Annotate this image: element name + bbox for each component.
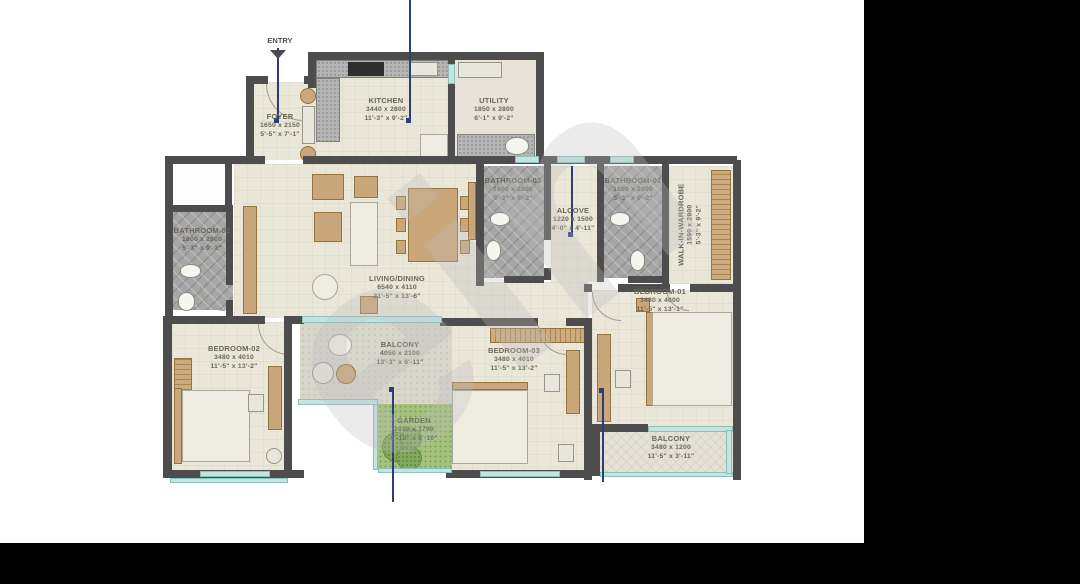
wall — [544, 268, 551, 280]
utility-sink-icon — [458, 62, 502, 78]
letterbox-bottom — [0, 543, 1080, 584]
room-name: BEDROOM-03 — [464, 346, 564, 356]
room-name: BATHROOM-02 — [166, 226, 238, 236]
wall — [504, 276, 544, 283]
letterbox-right — [864, 0, 1080, 584]
entry-arrow-icon — [270, 50, 286, 59]
wall — [165, 156, 265, 164]
console-icon — [243, 206, 257, 314]
room-name: BALCONY — [616, 434, 726, 444]
window — [600, 472, 733, 477]
room-label-foyer: FOYER 1650 x 2150 5'-5" x 7'-1" — [248, 112, 312, 139]
room-name: ALCOVE — [546, 206, 600, 216]
room-dim-ft: 6'-1" x 9'-2" — [450, 115, 538, 124]
window — [557, 156, 585, 163]
sink-icon — [490, 212, 510, 226]
room-label-bedroom-03: BEDROOM-03 3480 x 4010 11'-5" x 13'-2" — [464, 346, 564, 373]
room-label-balcony-bedroom: BALCONY 3480 x 1200 11'-5" x 3'-11" — [616, 434, 726, 461]
wall — [303, 156, 355, 164]
room-dim-mm: 1600 x 2800 — [598, 186, 668, 195]
room-label-bedroom-02: BEDROOM-02 3480 x 4010 11'-5" x 13'-2" — [188, 344, 280, 371]
wall — [165, 205, 233, 212]
wall — [284, 316, 292, 478]
wall — [592, 424, 648, 432]
room-name: KITCHEN — [340, 96, 432, 106]
window — [378, 468, 452, 473]
leader-line — [277, 48, 279, 122]
room-dim-mm: 2090 x 1790 — [374, 426, 454, 435]
room-name: LIVING/DINING — [348, 274, 446, 284]
bed-icon — [182, 390, 250, 462]
floor-shaft — [173, 163, 227, 207]
desk-icon — [268, 366, 282, 430]
desk-icon — [597, 334, 611, 422]
leader-line — [602, 390, 604, 482]
wall — [592, 424, 600, 476]
round-chair-icon — [312, 274, 338, 300]
room-dim-ft: 5'-3" x 9'-2" — [478, 195, 548, 204]
room-name: BALCONY — [352, 340, 448, 350]
window — [726, 430, 732, 474]
room-dim-ft: 11'-5" x 13'-2" — [188, 363, 280, 372]
room-dim-ft: 21'-5" x 13'-6" — [348, 293, 446, 302]
room-dim-ft: 11'-5" x 13'-1" — [600, 306, 720, 315]
room-dim-ft: 5'-3" x 9'-2" — [598, 195, 668, 204]
room-dim-mm: 3480 x 4000 — [600, 297, 720, 306]
room-label-alcove: ALCOVE 1220 x 1500 4'-0" x 4'-11" — [546, 206, 600, 233]
window — [648, 426, 733, 432]
dining-chair-icon — [396, 196, 406, 210]
stool-icon — [266, 448, 282, 464]
room-label-bedroom-01: BEDROOM-01 3480 x 4000 11'-5" x 13'-1" — [600, 287, 720, 314]
toilet-icon — [630, 250, 645, 271]
sofa-icon — [350, 202, 378, 266]
planter-icon — [328, 334, 352, 356]
window — [448, 64, 455, 84]
room-dim-ft: 5'-3" x 9'-2" — [166, 245, 238, 254]
room-name: UTILITY — [450, 96, 538, 106]
leader-line — [392, 390, 394, 502]
sink-icon — [178, 292, 195, 311]
dining-chair-icon — [396, 218, 406, 232]
room-label-bathroom-02: BATHROOM-02 1600 x 2800 5'-3" x 9'-2" — [166, 226, 238, 253]
dining-chair-icon — [460, 240, 470, 254]
room-name: FOYER — [248, 112, 312, 122]
room-dim-mm: 1850 x 2800 — [450, 106, 538, 115]
room-label-bathroom-03: BATHROOM-03 1600 x 2800 5'-3" x 9'-2" — [478, 176, 548, 203]
lounge-chair-icon — [314, 212, 342, 242]
room-dim-ft: 4'-0" x 4'-11" — [546, 225, 600, 234]
wall — [733, 160, 741, 480]
room-dim-mm: 3440 x 2800 — [340, 106, 432, 115]
room-name: BEDROOM-01 — [600, 287, 720, 297]
desk-icon — [566, 350, 580, 414]
chair-icon — [248, 394, 264, 412]
leader-dot — [389, 387, 394, 392]
wardrobe-shelves-icon — [711, 170, 731, 280]
room-dim-ft: 13'-3" x 6'-11" — [352, 359, 448, 368]
room-label-bathroom-01: BATHROOM-01 1600 x 2800 5'-3" x 9'-2" — [598, 176, 668, 203]
room-dim-mm: 1590 x 2800 — [686, 170, 695, 280]
room-dim-mm: 1600 x 2800 — [478, 186, 548, 195]
leader-dot — [599, 388, 604, 393]
window — [610, 156, 634, 163]
room-name: BATHROOM-03 — [478, 176, 548, 186]
armchair-icon — [312, 174, 344, 200]
kitchen-counter — [316, 78, 340, 142]
room-dim-ft: 11'-3" x 9'-2" — [340, 115, 432, 124]
wall — [584, 318, 592, 480]
window-sill — [170, 478, 288, 483]
armchair-icon — [354, 176, 378, 198]
wall — [225, 163, 232, 211]
room-label-living-dining: LIVING/DINING 6540 x 4110 21'-5" x 13'-6… — [348, 274, 446, 301]
window — [200, 471, 270, 477]
bed-frame-icon — [452, 382, 528, 390]
sink-icon — [610, 212, 630, 226]
wall — [304, 76, 316, 84]
room-name: BATHROOM-01 — [598, 176, 668, 186]
dining-table-icon — [408, 188, 458, 262]
room-name: GARDEN — [374, 416, 454, 426]
washer-icon — [505, 137, 529, 155]
room-name: WALK-IN-WARDROBE — [676, 170, 686, 280]
dining-chair-icon — [396, 240, 406, 254]
chair-icon — [544, 374, 560, 392]
bed-icon — [452, 390, 528, 464]
room-label-garden: GARDEN 2090 x 1790 6'-10" x 5'-10" — [374, 416, 454, 443]
stove-icon — [348, 62, 384, 76]
window — [298, 399, 378, 405]
wall — [165, 316, 265, 324]
room-dim-ft: 11'-5" x 13'-2" — [464, 365, 564, 374]
bed-icon — [652, 312, 732, 406]
dishwasher-icon — [420, 134, 448, 157]
wall — [628, 276, 662, 283]
room-dim-ft: 5'-3" x 9'-2" — [695, 170, 704, 280]
window — [302, 316, 442, 323]
room-dim-mm: 3480 x 4010 — [464, 356, 564, 365]
chair-icon — [558, 444, 574, 462]
room-dim-mm: 1220 x 1500 — [546, 216, 600, 225]
room-dim-mm: 3480 x 4010 — [188, 354, 280, 363]
room-name: BEDROOM-02 — [188, 344, 280, 354]
window — [480, 471, 560, 477]
room-dim-ft: 11'-5" x 3'-11" — [616, 453, 726, 462]
room-dim-mm: 1650 x 2150 — [248, 122, 312, 131]
toilet-icon — [180, 264, 201, 278]
tv-unit-icon — [468, 182, 476, 240]
room-label-kitchen: KITCHEN 3440 x 2800 11'-3" x 9'-2" — [340, 96, 432, 123]
room-label-balcony-living: BALCONY 4050 x 2100 13'-3" x 6'-11" — [352, 340, 448, 367]
planter-icon — [312, 362, 334, 384]
bed-frame-icon — [174, 388, 182, 464]
wall — [584, 284, 592, 292]
room-dim-mm: 4050 x 2100 — [352, 350, 448, 359]
wall — [226, 300, 233, 316]
wall — [163, 316, 172, 478]
wall — [284, 470, 304, 478]
entry-label: ENTRY — [258, 36, 302, 45]
kitchen-sink-icon — [410, 62, 438, 76]
wall — [440, 318, 538, 326]
floor-plan-canvas: ENTRY FOYER 1650 x 2150 5'-5" x 7'-1" KI… — [0, 0, 1080, 584]
room-label-walk-in-wardrobe: WALK-IN-WARDROBE 1590 x 2800 5'-3" x 9'-… — [676, 170, 703, 280]
room-dim-mm: 3480 x 1200 — [616, 444, 726, 453]
chair-icon — [615, 370, 631, 388]
room-dim-mm: 6540 x 4110 — [348, 284, 446, 293]
room-dim-mm: 1600 x 2800 — [166, 236, 238, 245]
room-dim-ft: 5'-5" x 7'-1" — [248, 131, 312, 140]
room-dim-ft: 6'-10" x 5'-10" — [374, 435, 454, 444]
wall — [310, 52, 544, 60]
room-label-utility: UTILITY 1850 x 2800 6'-1" x 9'-2" — [450, 96, 538, 123]
window — [515, 156, 539, 163]
